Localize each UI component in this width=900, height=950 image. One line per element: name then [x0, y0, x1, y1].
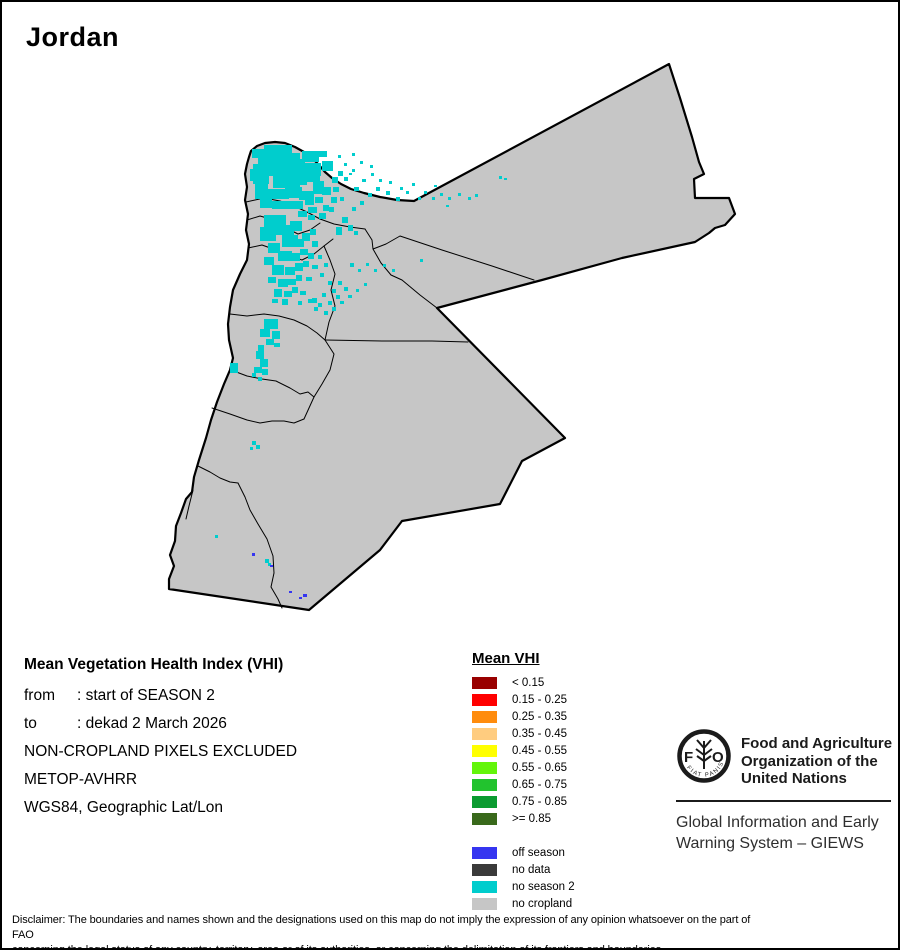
legend-item: no cropland [472, 895, 575, 912]
wheat-icon [696, 740, 712, 769]
disclaimer-line2: concerning the legal status of any count… [12, 943, 772, 950]
fao-org-line2: Organization of the [741, 753, 892, 771]
disclaimer-line1: Disclaimer: The boundaries and names sho… [12, 913, 772, 943]
legend-swatch [472, 796, 497, 808]
legend-title: Mean VHI [472, 650, 575, 667]
legend-label: no season 2 [512, 881, 575, 893]
legend-item: 0.65 - 0.75 [472, 776, 575, 793]
legend-swatch [472, 762, 497, 774]
legend-label: < 0.15 [512, 677, 544, 689]
info-to-label: to [24, 716, 77, 732]
legend-label: 0.35 - 0.45 [512, 728, 567, 740]
legend-label: 0.15 - 0.25 [512, 694, 567, 706]
fao-divider [676, 800, 891, 802]
disclaimer: Disclaimer: The boundaries and names sho… [12, 913, 772, 950]
legend-label: >= 0.85 [512, 813, 551, 825]
legend-swatch [472, 847, 497, 859]
info-from-label: from [24, 688, 77, 704]
legend-label: no data [512, 864, 550, 876]
legend-swatch [472, 677, 497, 689]
giews-name: Global Information and Early Warning Sys… [676, 812, 879, 854]
legend-label: 0.65 - 0.75 [512, 779, 567, 791]
legend-item: 0.25 - 0.35 [472, 708, 575, 725]
fao-org-line3: United Nations [741, 770, 892, 788]
legend-swatch [472, 898, 497, 910]
legend-swatch [472, 864, 497, 876]
info-row-to: to: dekad 2 March 2026 [24, 716, 297, 732]
country-outline [169, 64, 735, 610]
info-row-from: from: start of SEASON 2 [24, 688, 297, 704]
legend-swatch [472, 711, 497, 723]
legend-item: 0.35 - 0.45 [472, 725, 575, 742]
legend-swatch [472, 694, 497, 706]
legend-label: off season [512, 847, 565, 859]
legend-item: off season [472, 844, 575, 861]
legend-item: >= 0.85 [472, 810, 575, 827]
legend-swatch [472, 813, 497, 825]
legend-swatch [472, 779, 497, 791]
legend-label: 0.45 - 0.55 [512, 745, 567, 757]
map-report-page: Jordan [0, 0, 900, 950]
legend-label: no cropland [512, 898, 572, 910]
info-line-sensor: METOP-AVHRR [24, 772, 297, 788]
legend-label: 0.55 - 0.65 [512, 762, 567, 774]
giews-line1: Global Information and Early [676, 812, 879, 833]
legend-status-classes: off seasonno datano season 2no cropland [472, 844, 575, 912]
info-from-value: : start of SEASON 2 [77, 687, 215, 704]
fao-logo: F O FIAT PANIS [676, 728, 732, 786]
info-title: Mean Vegetation Health Index (VHI) [24, 656, 297, 674]
fao-org-name: Food and Agriculture Organization of the… [741, 735, 892, 788]
vhi-legend: Mean VHI < 0.150.15 - 0.250.25 - 0.350.3… [472, 650, 575, 912]
jordan-map [2, 2, 900, 647]
legend-vhi-classes: < 0.150.15 - 0.250.25 - 0.350.35 - 0.450… [472, 674, 575, 827]
giews-line2: Warning System – GIEWS [676, 833, 879, 854]
legend-item: 0.55 - 0.65 [472, 759, 575, 776]
legend-item: no season 2 [472, 878, 575, 895]
legend-swatch [472, 881, 497, 893]
info-to-value: : dekad 2 March 2026 [77, 715, 227, 732]
legend-label: 0.25 - 0.35 [512, 711, 567, 723]
legend-item: no data [472, 861, 575, 878]
legend-item: 0.15 - 0.25 [472, 691, 575, 708]
info-panel: Mean Vegetation Health Index (VHI) from:… [24, 656, 297, 828]
fao-letter-f: F [684, 749, 693, 766]
legend-swatch [472, 728, 497, 740]
legend-item: 0.45 - 0.55 [472, 742, 575, 759]
legend-swatch [472, 745, 497, 757]
legend-label: 0.75 - 0.85 [512, 796, 567, 808]
legend-item: 0.75 - 0.85 [472, 793, 575, 810]
info-line-projection: WGS84, Geographic Lat/Lon [24, 800, 297, 816]
fao-org-line1: Food and Agriculture [741, 735, 892, 753]
info-line-noncropland: NON-CROPLAND PIXELS EXCLUDED [24, 744, 297, 760]
legend-item: < 0.15 [472, 674, 575, 691]
